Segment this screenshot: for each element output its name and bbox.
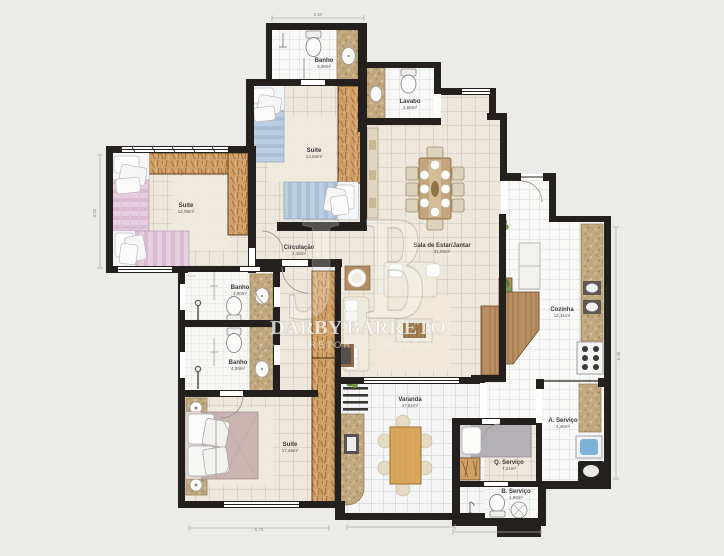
svg-text:12,05m²: 12,05m²	[178, 209, 195, 214]
svg-text:2,68m²: 2,68m²	[403, 105, 418, 110]
svg-text:3,90m²: 3,90m²	[233, 291, 248, 296]
svg-text:1,98m²: 1,98m²	[509, 495, 524, 500]
svg-text:13,50m²: 13,50m²	[306, 154, 323, 159]
svg-text:7,21m²: 7,21m²	[502, 466, 517, 471]
svg-text:3,08m²: 3,08m²	[317, 64, 332, 69]
svg-text:4,46m²: 4,46m²	[556, 424, 571, 429]
svg-text:17,81m²: 17,81m²	[402, 403, 419, 408]
svg-text:3,02: 3,02	[92, 208, 97, 217]
svg-text:12,31m²: 12,31m²	[554, 313, 571, 318]
svg-text:2,50: 2,50	[314, 12, 323, 17]
svg-text:17,46m²: 17,46m²	[282, 448, 299, 453]
svg-text:6,95: 6,95	[616, 351, 621, 360]
svg-text:5,75: 5,75	[255, 527, 264, 532]
svg-text:31,90m²: 31,90m²	[434, 249, 451, 254]
svg-text:DARBY BARRETO: DARBY BARRETO	[270, 317, 446, 339]
svg-text:CORRETOR DE IMÓVEIS: CORRETOR DE IMÓVEIS	[282, 340, 434, 350]
svg-text:4,09m²: 4,09m²	[231, 366, 246, 371]
